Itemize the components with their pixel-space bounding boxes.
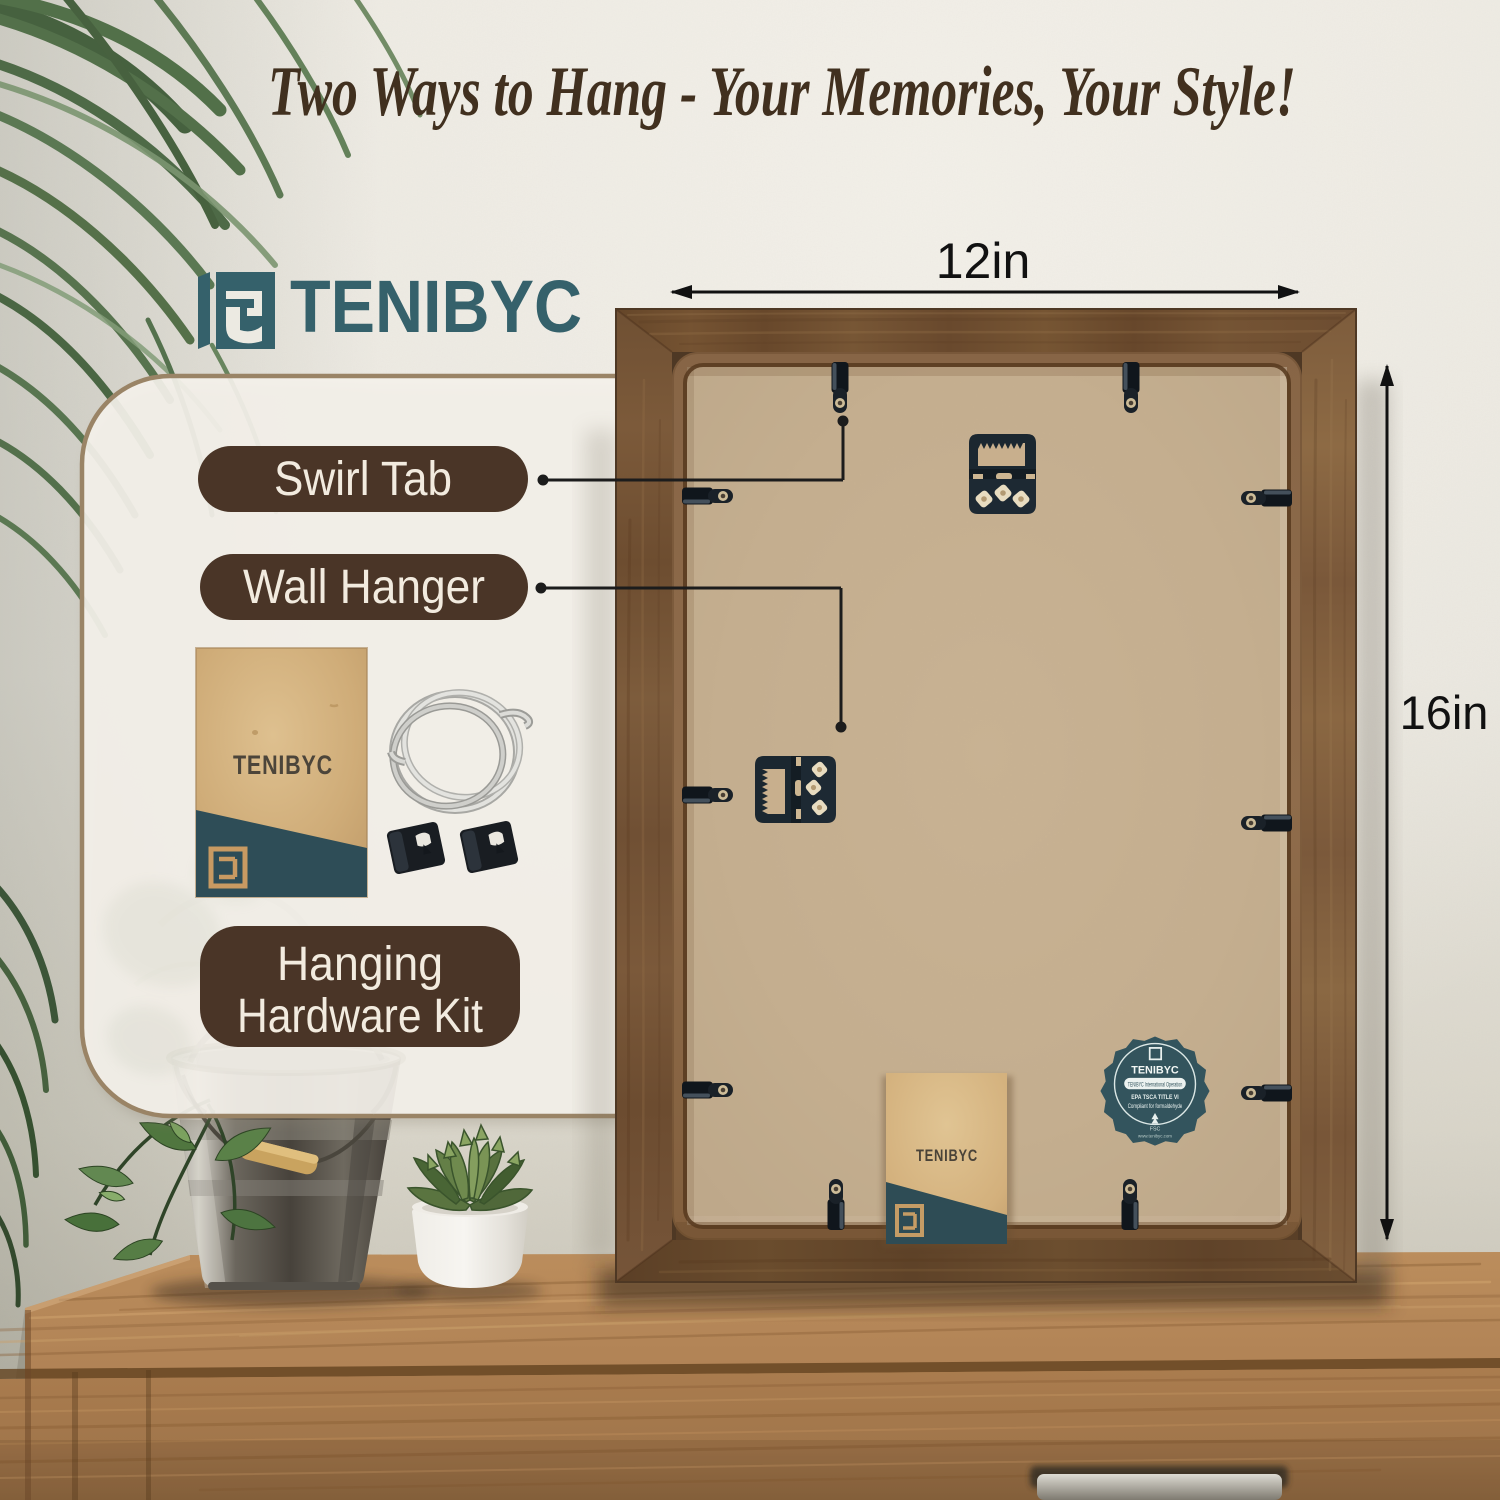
svg-text:Wall Hanger: Wall Hanger — [243, 561, 485, 614]
svg-text:TENIBYC International Operatio: TENIBYC International Operation — [1128, 1082, 1183, 1089]
svg-text:16in: 16in — [1400, 686, 1489, 739]
svg-text:TENIBYC: TENIBYC — [290, 265, 582, 348]
svg-text:TENIBYC: TENIBYC — [1131, 1064, 1179, 1076]
svg-text:FSC: FSC — [1150, 1127, 1161, 1133]
svg-text:TENIBYC: TENIBYC — [916, 1146, 978, 1165]
svg-text:EPA TSCA TITLE VI: EPA TSCA TITLE VI — [1131, 1094, 1179, 1101]
svg-text:Hardware Kit: Hardware Kit — [237, 990, 483, 1043]
svg-text:Two Ways to Hang - Your Memori: Two Ways to Hang - Your Memories, Your S… — [268, 53, 1296, 131]
svg-text:12in: 12in — [936, 233, 1031, 289]
svg-text:www.tenibyc.com: www.tenibyc.com — [1138, 1134, 1172, 1139]
svg-text:Hanging: Hanging — [277, 938, 443, 991]
svg-text:Swirl Tab: Swirl Tab — [274, 453, 452, 506]
svg-text:Compliant for formaldehyde: Compliant for formaldehyde — [1128, 1103, 1183, 1110]
svg-text:TENIBYC: TENIBYC — [233, 750, 333, 780]
